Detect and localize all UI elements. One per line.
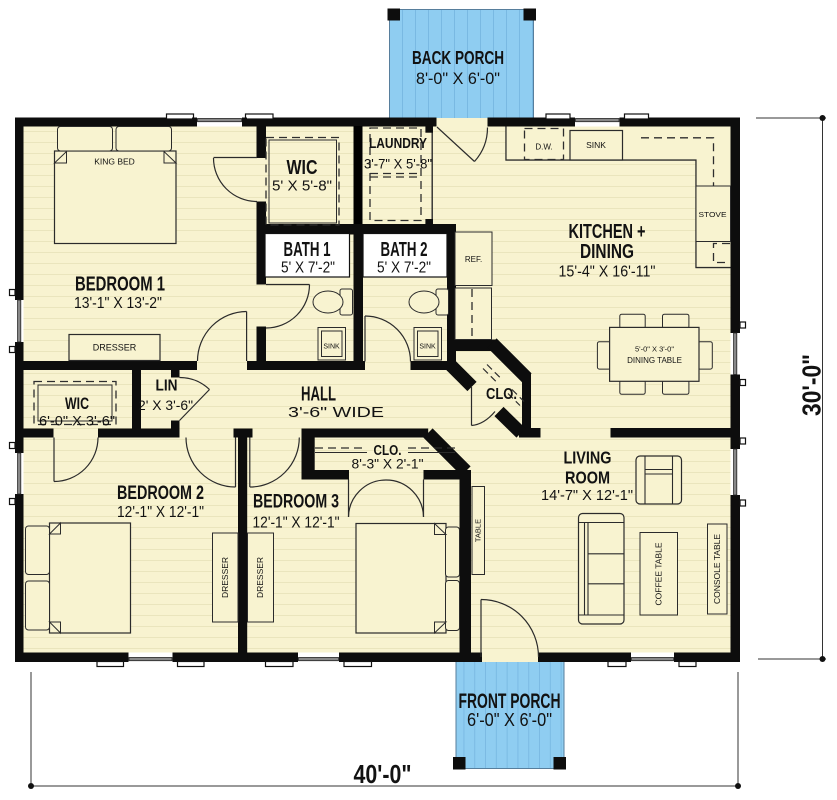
svg-text:DINING: DINING — [580, 240, 634, 263]
svg-text:DRESSER: DRESSER — [93, 343, 137, 353]
svg-text:BEDROOM 3: BEDROOM 3 — [253, 491, 339, 513]
svg-text:15'-4" X 16'-11": 15'-4" X 16'-11" — [559, 264, 656, 281]
svg-text:LAUNDRY: LAUNDRY — [369, 135, 427, 152]
svg-text:WIC: WIC — [65, 394, 89, 413]
svg-text:REF.: REF. — [465, 255, 482, 264]
svg-text:SINK: SINK — [419, 344, 436, 351]
svg-text:BATH 2: BATH 2 — [381, 239, 428, 261]
svg-text:BEDROOM 1: BEDROOM 1 — [75, 274, 165, 296]
svg-text:DINING TABLE: DINING TABLE — [627, 356, 682, 365]
svg-text:BACK PORCH: BACK PORCH — [412, 48, 504, 68]
svg-text:CONSOLE TABLE: CONSOLE TABLE — [712, 534, 722, 604]
svg-text:8'-3" X 2'-1": 8'-3" X 2'-1" — [352, 457, 424, 472]
svg-text:40'-0": 40'-0" — [354, 759, 412, 789]
svg-text:3'-7" X 5'-8": 3'-7" X 5'-8" — [364, 156, 432, 172]
svg-text:KING BED: KING BED — [94, 157, 135, 167]
svg-text:BEDROOM 2: BEDROOM 2 — [117, 482, 204, 504]
svg-text:TABLE: TABLE — [474, 519, 483, 542]
svg-text:STOVE: STOVE — [699, 210, 727, 219]
svg-text:2' X 3'-6": 2' X 3'-6" — [138, 397, 193, 413]
svg-text:BATH 1: BATH 1 — [284, 239, 331, 261]
svg-text:5' X 7'-2": 5' X 7'-2" — [281, 260, 335, 277]
svg-text:LIN: LIN — [156, 378, 178, 395]
svg-text:COFFEE TABLE: COFFEE TABLE — [654, 542, 664, 605]
svg-text:DRESSER: DRESSER — [255, 557, 265, 598]
svg-text:SINK: SINK — [586, 140, 606, 150]
svg-text:LIVING: LIVING — [564, 448, 612, 468]
svg-text:WIC: WIC — [287, 157, 318, 179]
svg-text:CLO.: CLO. — [486, 386, 517, 403]
svg-text:DRESSER: DRESSER — [220, 557, 230, 598]
svg-text:SINK: SINK — [323, 344, 340, 351]
svg-text:6'-0" X 6'-0": 6'-0" X 6'-0" — [467, 710, 552, 730]
svg-text:5' X 5'-8": 5' X 5'-8" — [272, 178, 332, 195]
svg-text:30'-0": 30'-0" — [797, 354, 827, 416]
svg-text:5' X 7'-2": 5' X 7'-2" — [377, 260, 431, 277]
svg-text:12'-1" X 12'-1": 12'-1" X 12'-1" — [253, 515, 340, 532]
svg-text:6'-0" X 3'-6": 6'-0" X 3'-6" — [39, 413, 115, 429]
svg-text:ROOM: ROOM — [565, 468, 610, 488]
svg-text:8'-0" X 6'-0": 8'-0" X 6'-0" — [416, 70, 500, 88]
svg-text:D.W.: D.W. — [535, 143, 552, 152]
svg-text:13'-1" X 13'-2": 13'-1" X 13'-2" — [74, 295, 162, 312]
svg-text:5'-0" X 3'-0": 5'-0" X 3'-0" — [635, 345, 674, 354]
svg-text:HALL: HALL — [301, 384, 336, 406]
svg-text:14'-7" X 12'-1": 14'-7" X 12'-1" — [541, 487, 633, 504]
svg-text:3'-6" WIDE: 3'-6" WIDE — [288, 404, 384, 421]
svg-text:12'-1" X 12'-1": 12'-1" X 12'-1" — [117, 504, 204, 521]
